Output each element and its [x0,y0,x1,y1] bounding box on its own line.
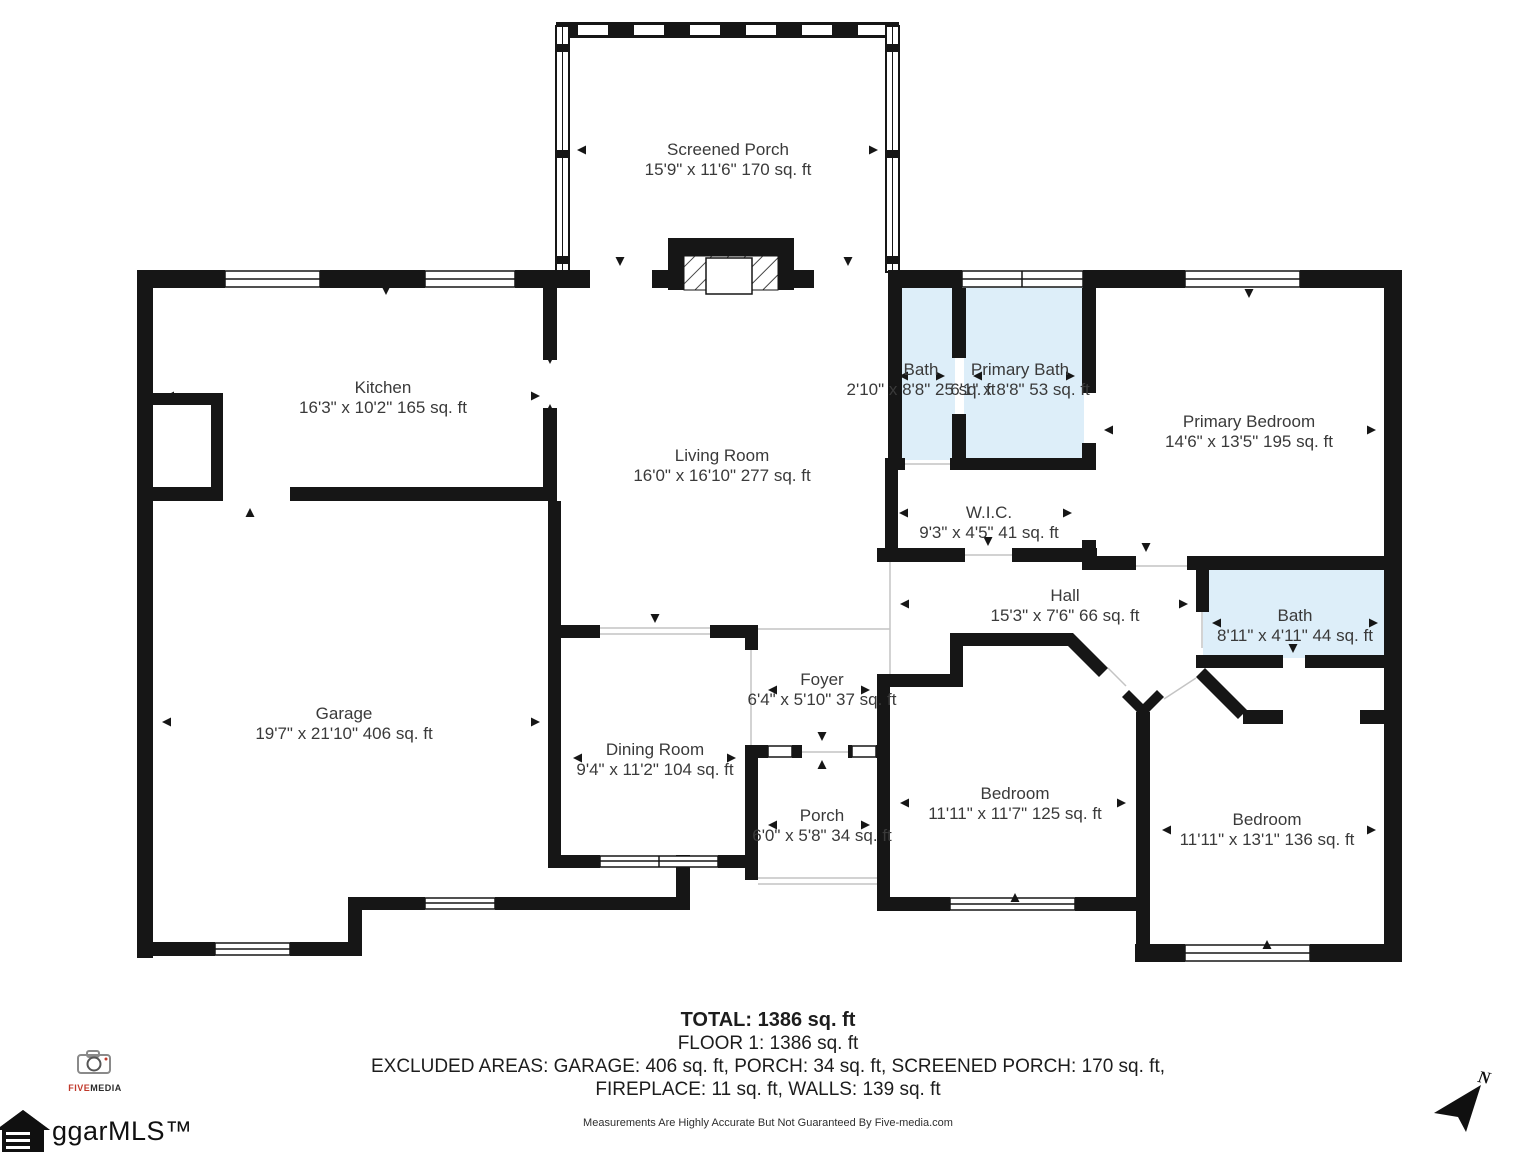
room-dims: 11'11" x 11'7" 125 sq. ft [928,804,1102,824]
photographer-wordmark: FIVEMEDIA [50,1083,140,1093]
disclaimer-text: Measurements Are Highly Accurate But Not… [0,1117,1536,1130]
room-dims: 6'1" x 8'8" 53 sq. ft [950,380,1090,400]
room-name: Garage [255,704,432,724]
room-label-porch: Porch 6'0" x 5'8" 34 sq. ft [752,806,892,846]
room-dims: 9'3" x 4'5" 41 sq. ft [919,523,1059,543]
room-dims: 16'0" x 16'10" 277 sq. ft [633,466,810,486]
bath-fills [893,286,1386,658]
room-label-screened-porch: Screened Porch 15'9" x 11'6" 170 sq. ft [645,140,812,180]
room-label-bedroom-1: Bedroom 11'11" x 11'7" 125 sq. ft [928,784,1102,824]
room-name: Living Room [633,446,810,466]
house-icon [0,1108,52,1152]
room-label-primary-bath: Primary Bath 6'1" x 8'8" 53 sq. ft [950,360,1090,400]
mls-logo: ggarMLS™ [0,1108,193,1152]
room-name: Kitchen [299,378,467,398]
room-name: Hall [991,586,1140,606]
excluded-areas-line-1: EXCLUDED AREAS: GARAGE: 406 sq. ft, PORC… [0,1055,1536,1078]
room-label-wic: W.I.C. 9'3" x 4'5" 41 sq. ft [919,503,1059,543]
room-dims: 6'0" x 5'8" 34 sq. ft [752,826,892,846]
room-dims: 15'3" x 7'6" 66 sq. ft [991,606,1140,626]
room-name: W.I.C. [919,503,1059,523]
room-label-primary-bedroom: Primary Bedroom 14'6" x 13'5" 195 sq. ft [1165,412,1333,452]
room-label-garage: Garage 19'7" x 21'10" 406 sq. ft [255,704,432,744]
excluded-areas-line-2: FIREPLACE: 11 sq. ft, WALLS: 139 sq. ft [0,1078,1536,1101]
room-dims: 11'11" x 13'1" 136 sq. ft [1180,830,1355,850]
room-dims: 8'11" x 4'11" 44 sq. ft [1217,626,1373,646]
room-label-bath-right: Bath 8'11" x 4'11" 44 sq. ft [1217,606,1373,646]
room-name: Primary Bath [950,360,1090,380]
room-dims: 16'3" x 10'2" 165 sq. ft [299,398,467,418]
room-label-kitchen: Kitchen 16'3" x 10'2" 165 sq. ft [299,378,467,418]
room-label-foyer: Foyer 6'4" x 5'10" 37 sq. ft [748,670,897,710]
floor-plan-page: Screened Porch 15'9" x 11'6" 170 sq. ft … [0,0,1536,1152]
room-dims: 19'7" x 21'10" 406 sq. ft [255,724,432,744]
room-dims: 15'9" x 11'6" 170 sq. ft [645,160,812,180]
area-summary: TOTAL: 1386 sq. ft FLOOR 1: 1386 sq. ft … [0,1008,1536,1130]
room-dims: 14'6" x 13'5" 195 sq. ft [1165,432,1333,452]
room-label-living-room: Living Room 16'0" x 16'10" 277 sq. ft [633,446,810,486]
total-area-line: TOTAL: 1386 sq. ft [0,1008,1536,1032]
room-label-dining-room: Dining Room 9'4" x 11'2" 104 sq. ft [576,740,733,780]
room-name: Primary Bedroom [1165,412,1333,432]
room-name: Foyer [748,670,897,690]
room-name: Bedroom [1180,810,1355,830]
room-label-hall: Hall 15'3" x 7'6" 66 sq. ft [991,586,1140,626]
mls-wordmark: ggarMLS™ [52,1116,193,1147]
room-name: Screened Porch [645,140,812,160]
room-dims: 9'4" x 11'2" 104 sq. ft [576,760,733,780]
camera-icon [75,1048,115,1076]
room-name: Dining Room [576,740,733,760]
room-dims: 6'4" x 5'10" 37 sq. ft [748,690,897,710]
photographer-logo: FIVEMEDIA [50,1048,140,1093]
room-name: Bedroom [928,784,1102,804]
fireplace [668,238,794,294]
room-label-bedroom-2: Bedroom 11'11" x 13'1" 136 sq. ft [1180,810,1355,850]
room-name: Porch [752,806,892,826]
floor-area-line: FLOOR 1: 1386 sq. ft [0,1032,1536,1055]
room-name: Bath [1217,606,1373,626]
